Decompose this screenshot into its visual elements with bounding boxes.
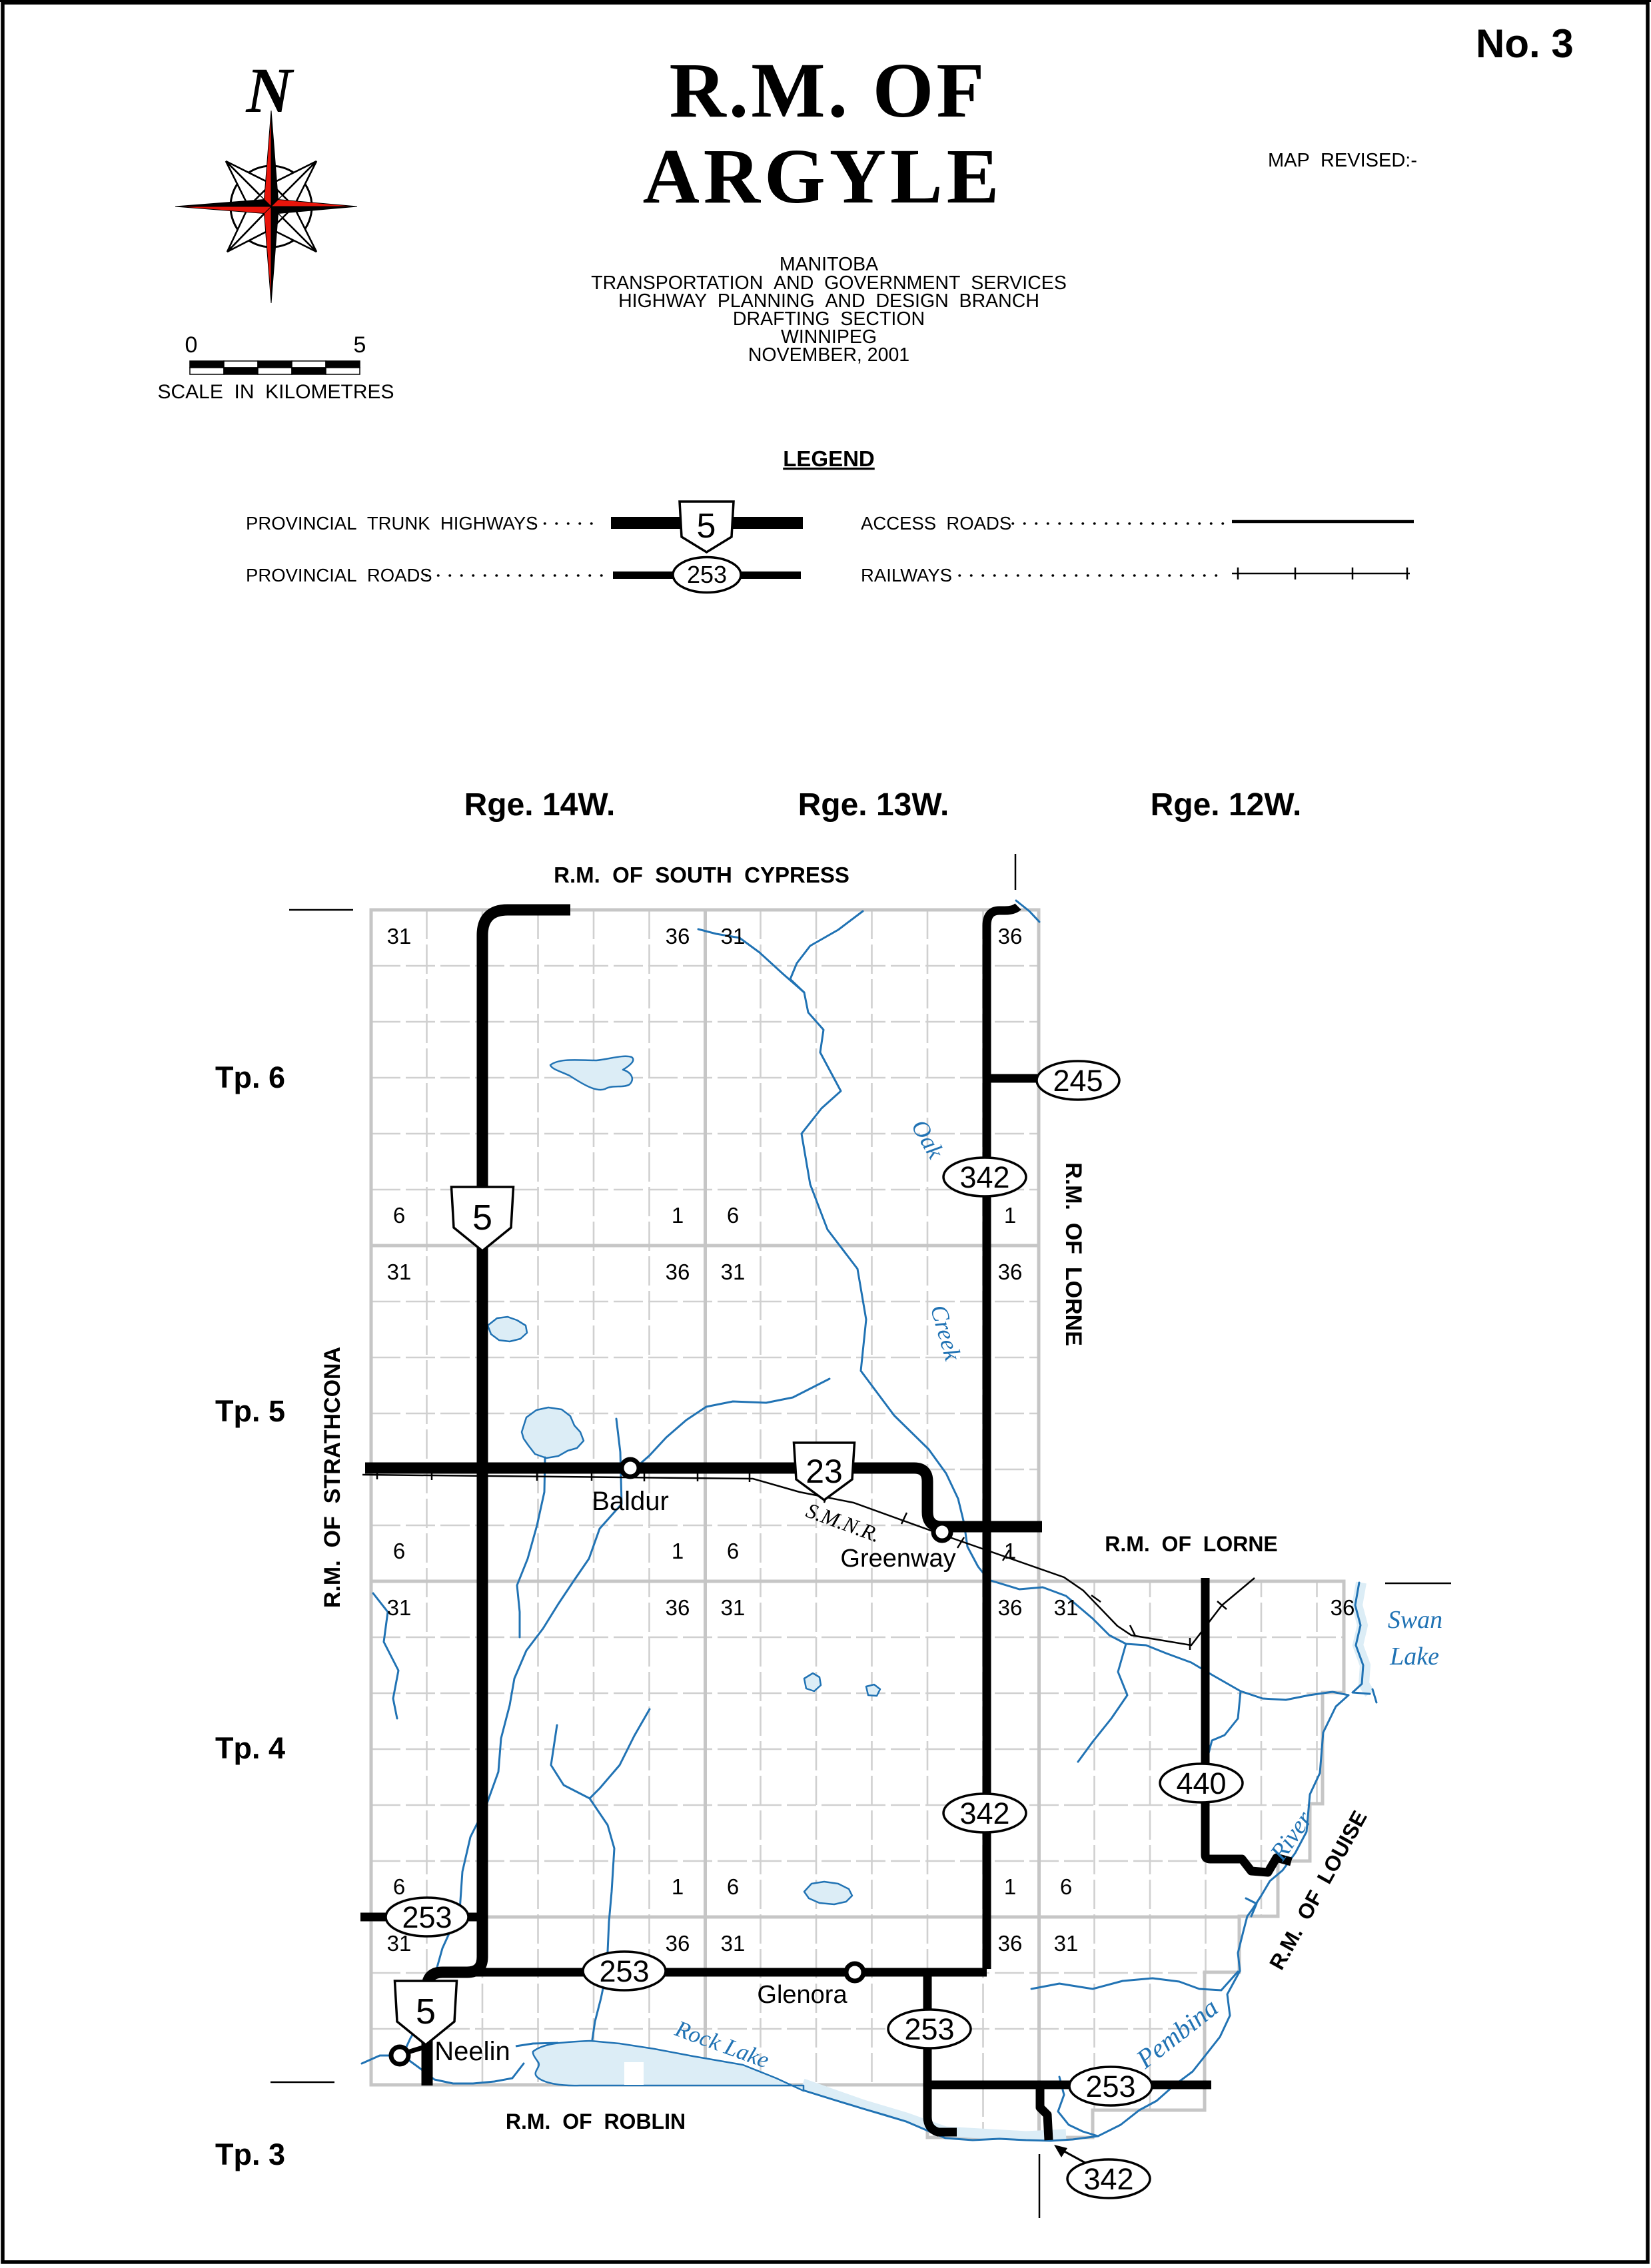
svg-text:R.M. OF SOUTH CYPRESS: R.M. OF SOUTH CYPRESS [554,863,849,887]
svg-text:1: 1 [1004,1874,1016,1899]
svg-text:PROVINCIAL ROADS: PROVINCIAL ROADS [246,565,432,585]
svg-text:Tp. 5: Tp. 5 [215,1394,285,1428]
svg-text:6: 6 [727,1874,739,1899]
svg-text:6: 6 [393,1874,405,1899]
svg-text:245: 245 [1053,1064,1103,1098]
svg-text:6: 6 [1060,1874,1072,1899]
svg-text:253: 253 [599,1954,649,1988]
svg-text:6: 6 [727,1539,739,1563]
svg-text:31: 31 [387,1260,412,1284]
svg-text:Lake: Lake [1389,1643,1439,1671]
svg-text:440: 440 [1176,1766,1226,1800]
svg-text:31: 31 [1054,1595,1079,1620]
svg-text:6: 6 [727,1203,739,1228]
svg-text:PROVINCIAL TRUNK HIGHWAYS: PROVINCIAL TRUNK HIGHWAYS [246,513,538,534]
svg-text:342: 342 [1083,2162,1133,2196]
svg-text:ARGYLE: ARGYLE [643,133,1003,220]
svg-text:Tp. 4: Tp. 4 [215,1731,285,1765]
svg-text:342: 342 [959,1796,1009,1830]
svg-text:5: 5 [416,1992,436,2032]
svg-text:253: 253 [1085,2070,1135,2103]
svg-text:RAILWAYS: RAILWAYS [861,565,952,585]
svg-text:1: 1 [672,1539,684,1563]
svg-text:5: 5 [697,507,716,546]
svg-text:31: 31 [387,1931,412,1956]
svg-text:SCALE IN KILOMETRES: SCALE IN KILOMETRES [157,381,394,403]
svg-text:Rge. 13W.: Rge. 13W. [798,787,949,823]
svg-text:ACCESS ROADS: ACCESS ROADS [861,513,1011,534]
svg-text:36: 36 [998,1595,1023,1620]
svg-text:Neelin: Neelin [434,2037,510,2066]
svg-text:342: 342 [959,1160,1009,1194]
svg-text:36: 36 [666,1931,690,1956]
svg-text:R.M. OF STRATHCONA: R.M. OF STRATHCONA [320,1347,345,1608]
svg-text:MAP REVISED:-: MAP REVISED:- [1268,150,1417,171]
svg-text:Tp. 6: Tp. 6 [215,1060,285,1094]
svg-text:36: 36 [1331,1595,1355,1620]
svg-text:No. 3: No. 3 [1476,21,1574,66]
svg-text:Rge. 12W.: Rge. 12W. [1151,787,1302,823]
svg-text:36: 36 [998,924,1023,948]
svg-text:6: 6 [393,1203,405,1228]
svg-text:Rge. 14W.: Rge. 14W. [464,787,616,823]
svg-text:1: 1 [1004,1539,1016,1563]
svg-text:5: 5 [354,332,366,358]
svg-text:LEGEND: LEGEND [783,446,875,471]
svg-text:Greenway: Greenway [840,1545,955,1573]
svg-text:6: 6 [393,1539,405,1563]
svg-text:36: 36 [666,1595,690,1620]
svg-text:31: 31 [721,1260,746,1284]
svg-text:R.M. OF LORNE: R.M. OF LORNE [1061,1162,1086,1346]
svg-text:36: 36 [666,1260,690,1284]
svg-text:R.M. OF: R.M. OF [670,47,987,134]
svg-text:31: 31 [1054,1931,1079,1956]
svg-text:31: 31 [721,1595,746,1620]
svg-text:31: 31 [387,1595,412,1620]
svg-text:Tp. 3: Tp. 3 [215,2137,285,2171]
svg-text:0: 0 [185,332,198,358]
svg-text:Baldur: Baldur [592,1487,669,1516]
svg-text:5: 5 [472,1198,492,1238]
svg-text:1: 1 [1004,1203,1016,1228]
svg-text:N: N [245,55,294,126]
svg-text:253: 253 [402,1900,452,1934]
svg-text:R.M. OF LORNE: R.M. OF LORNE [1105,1532,1278,1556]
svg-text:Glenora: Glenora [757,1981,847,2009]
svg-text:NOVEMBER, 2001: NOVEMBER, 2001 [748,344,909,366]
svg-text:R.M. OF ROBLIN: R.M. OF ROBLIN [506,2109,686,2133]
svg-text:Swan: Swan [1388,1606,1442,1634]
svg-text:31: 31 [721,1931,746,1956]
svg-text:23: 23 [806,1453,843,1490]
svg-text:31: 31 [721,924,746,948]
svg-text:31: 31 [387,924,412,948]
svg-text:1: 1 [672,1203,684,1228]
svg-text:253: 253 [904,2012,954,2046]
svg-text:253: 253 [687,561,727,588]
svg-text:36: 36 [998,1260,1023,1284]
svg-text:1: 1 [672,1874,684,1899]
svg-text:36: 36 [998,1931,1023,1956]
svg-text:36: 36 [666,924,690,948]
